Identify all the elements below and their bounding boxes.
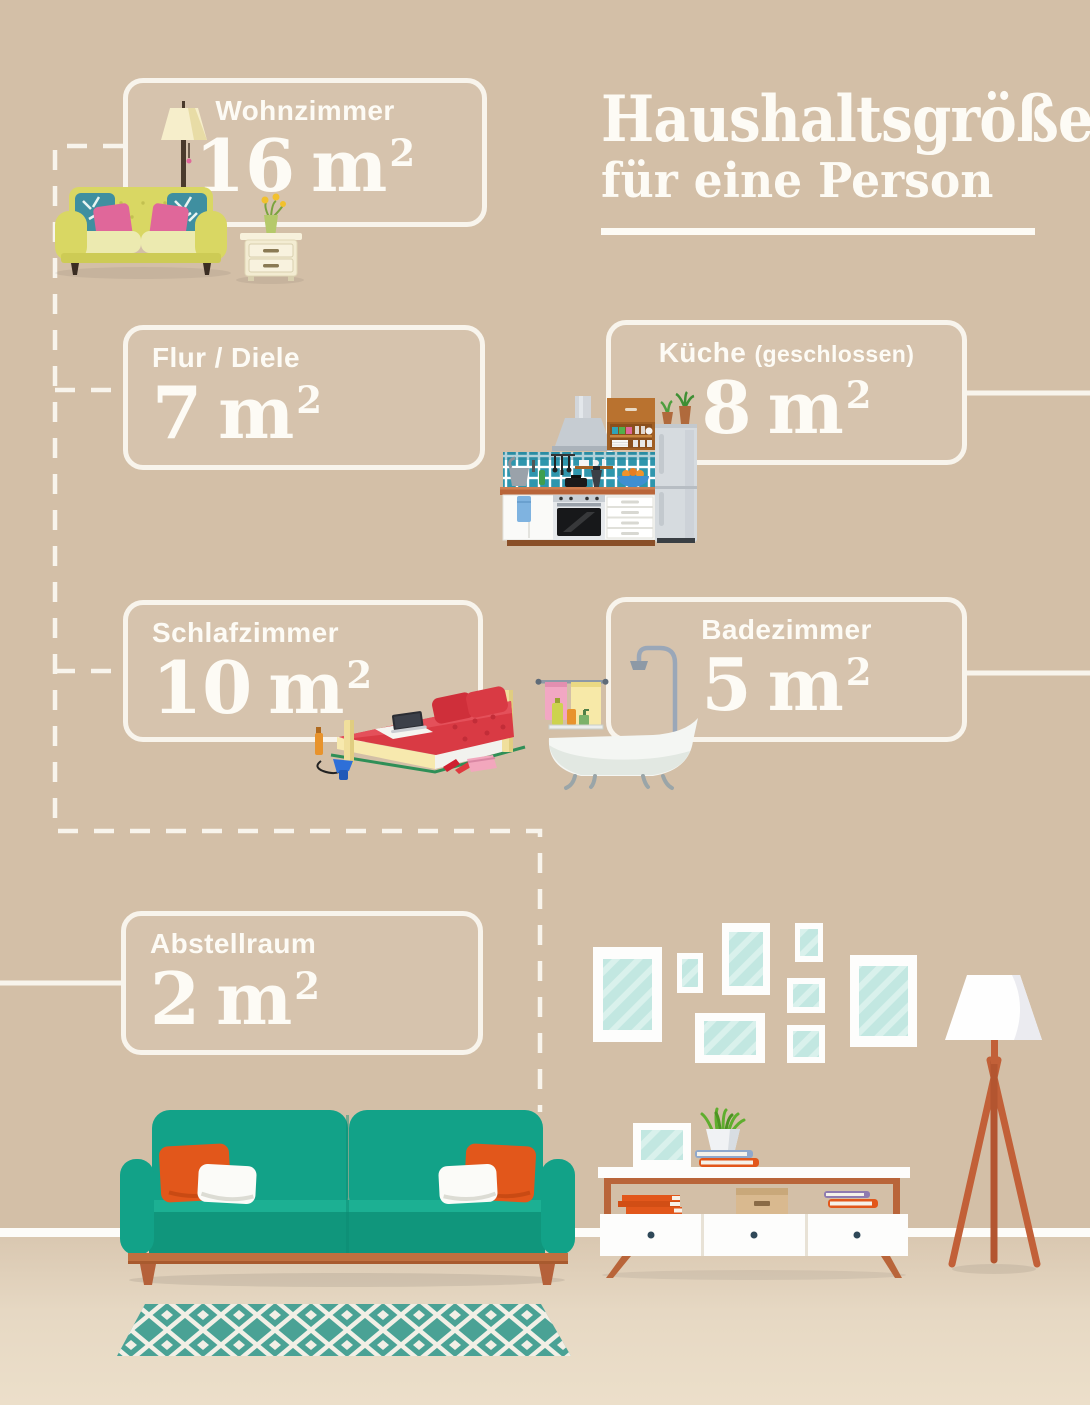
bathtub-icon <box>535 635 710 795</box>
area-unit: m <box>216 956 292 1041</box>
fridge-icon <box>655 424 697 543</box>
area-sup: 2 <box>846 650 872 694</box>
area-value: 10 <box>152 645 252 730</box>
tv-stand-shelf-items <box>618 1188 878 1214</box>
yellow-sofa-icon <box>55 187 227 275</box>
title-block: Haushaltsgröße für eine Person <box>601 88 1041 235</box>
room-area: 7m2 <box>152 376 480 451</box>
photo-frame-icon <box>633 1123 691 1167</box>
base-cabinets-icon <box>503 495 655 546</box>
area-sup: 2 <box>296 378 322 422</box>
range-hood-icon <box>552 396 614 451</box>
living-room-sofa-icon <box>55 95 305 285</box>
bed-icon <box>315 675 530 780</box>
floor-lamp-icon <box>920 972 1050 1277</box>
tv-stand-top-board <box>598 1167 910 1178</box>
orange-books-stack-icon <box>618 1195 682 1214</box>
potted-grass-icon <box>702 1109 744 1150</box>
storage-box-icon <box>736 1188 788 1214</box>
shelf-books-icon <box>824 1191 878 1208</box>
area-value: 2 <box>150 956 200 1041</box>
teal-sofa-icon <box>110 1095 585 1290</box>
area-unit: m <box>218 370 294 455</box>
kitchen-icon <box>495 390 710 548</box>
hair-dryer-icon <box>333 759 353 780</box>
lamp-shade <box>945 975 1042 1040</box>
picture-frames-icon <box>585 918 930 1068</box>
tv-stand-icon <box>596 1096 916 1280</box>
rug-icon <box>113 1300 578 1362</box>
area-sup: 2 <box>846 373 872 417</box>
spray-bottle-icon <box>315 727 323 755</box>
room-card-abstellraum: Abstellraum 2m2 <box>121 911 483 1055</box>
tv-stand-top-items <box>633 1109 759 1167</box>
page-title: Haushaltsgröße <box>601 88 988 152</box>
area-unit: m <box>768 642 844 727</box>
area-unit: m <box>311 123 387 208</box>
room-card-flur-diele: Flur / Diele 7m2 <box>123 325 485 470</box>
room-label-main: Küche <box>659 337 747 368</box>
title-underline <box>601 228 1035 235</box>
lamp-pole <box>991 1038 998 1064</box>
area-sup: 2 <box>389 131 415 175</box>
shower-head-icon <box>630 648 675 735</box>
lamp-legs <box>952 1060 1037 1264</box>
gallery-frames <box>593 923 917 1063</box>
nightstand-icon <box>240 194 302 282</box>
room-label-suffix: (geschlossen) <box>754 341 914 367</box>
infographic-haushaltsgroesse: Haushaltsgröße für eine Person Wohnzimme… <box>0 0 1090 1405</box>
area-sup: 2 <box>294 964 320 1008</box>
tv-stand-drawers <box>600 1214 908 1256</box>
potted-plants-icon <box>661 392 694 424</box>
room-area: 2m2 <box>150 962 478 1037</box>
area-unit: m <box>768 365 844 450</box>
upper-cabinet-icon <box>607 398 655 450</box>
area-value: 7 <box>152 370 202 455</box>
stacked-books-icon <box>695 1150 759 1167</box>
page-subtitle: für eine Person <box>601 156 1019 206</box>
